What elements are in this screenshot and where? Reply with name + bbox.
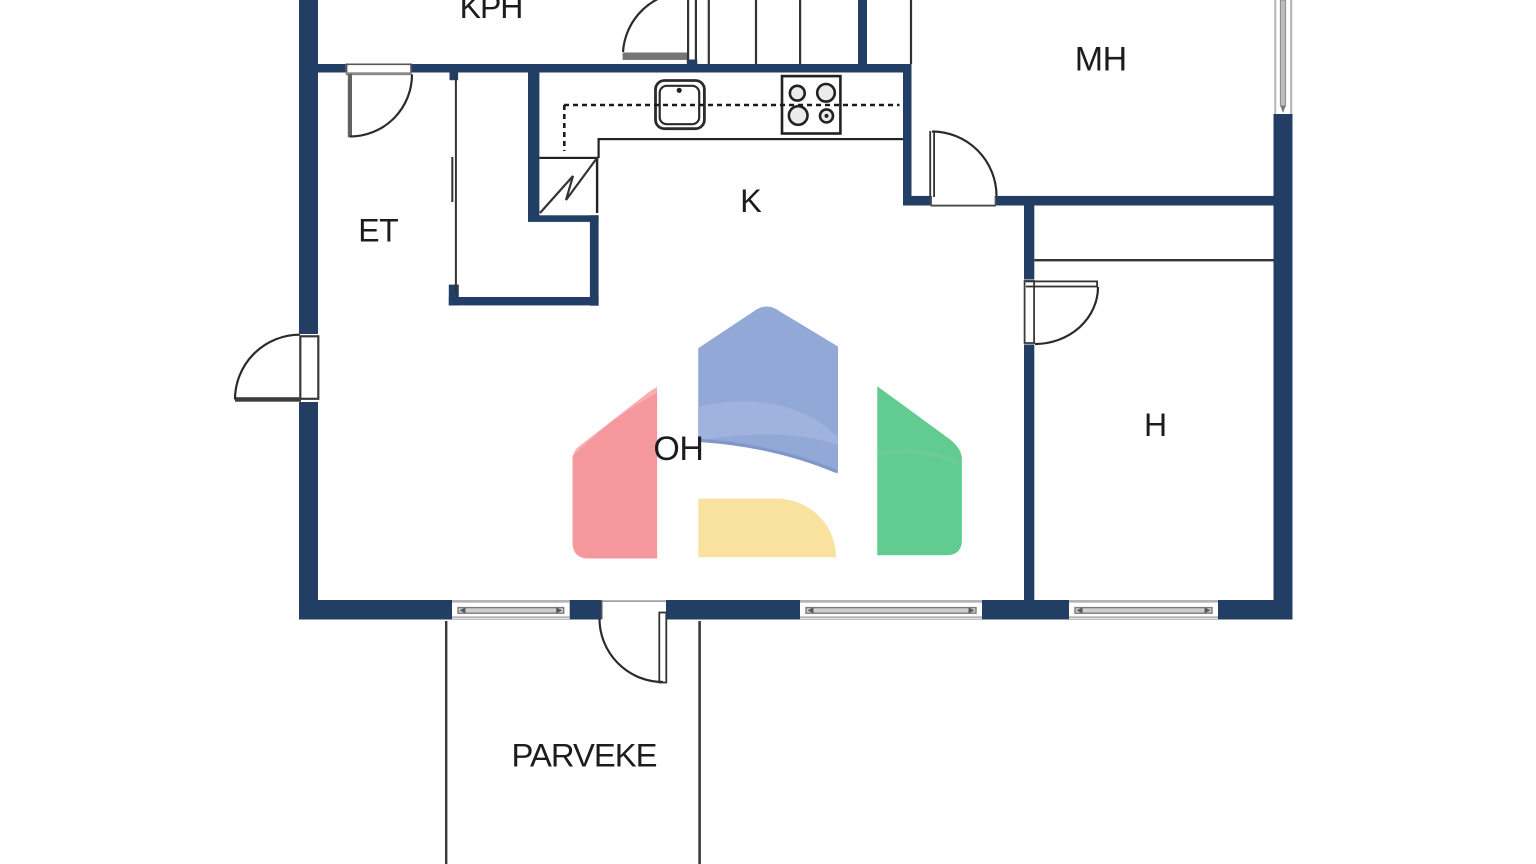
svg-text:H: H	[1144, 407, 1167, 443]
svg-text:K: K	[740, 183, 762, 219]
svg-text:OH: OH	[653, 430, 703, 468]
svg-text:PARVEKE: PARVEKE	[512, 736, 657, 773]
svg-text:ET: ET	[358, 213, 398, 249]
svg-text:MH: MH	[1075, 40, 1127, 78]
svg-text:KPH: KPH	[460, 0, 523, 25]
